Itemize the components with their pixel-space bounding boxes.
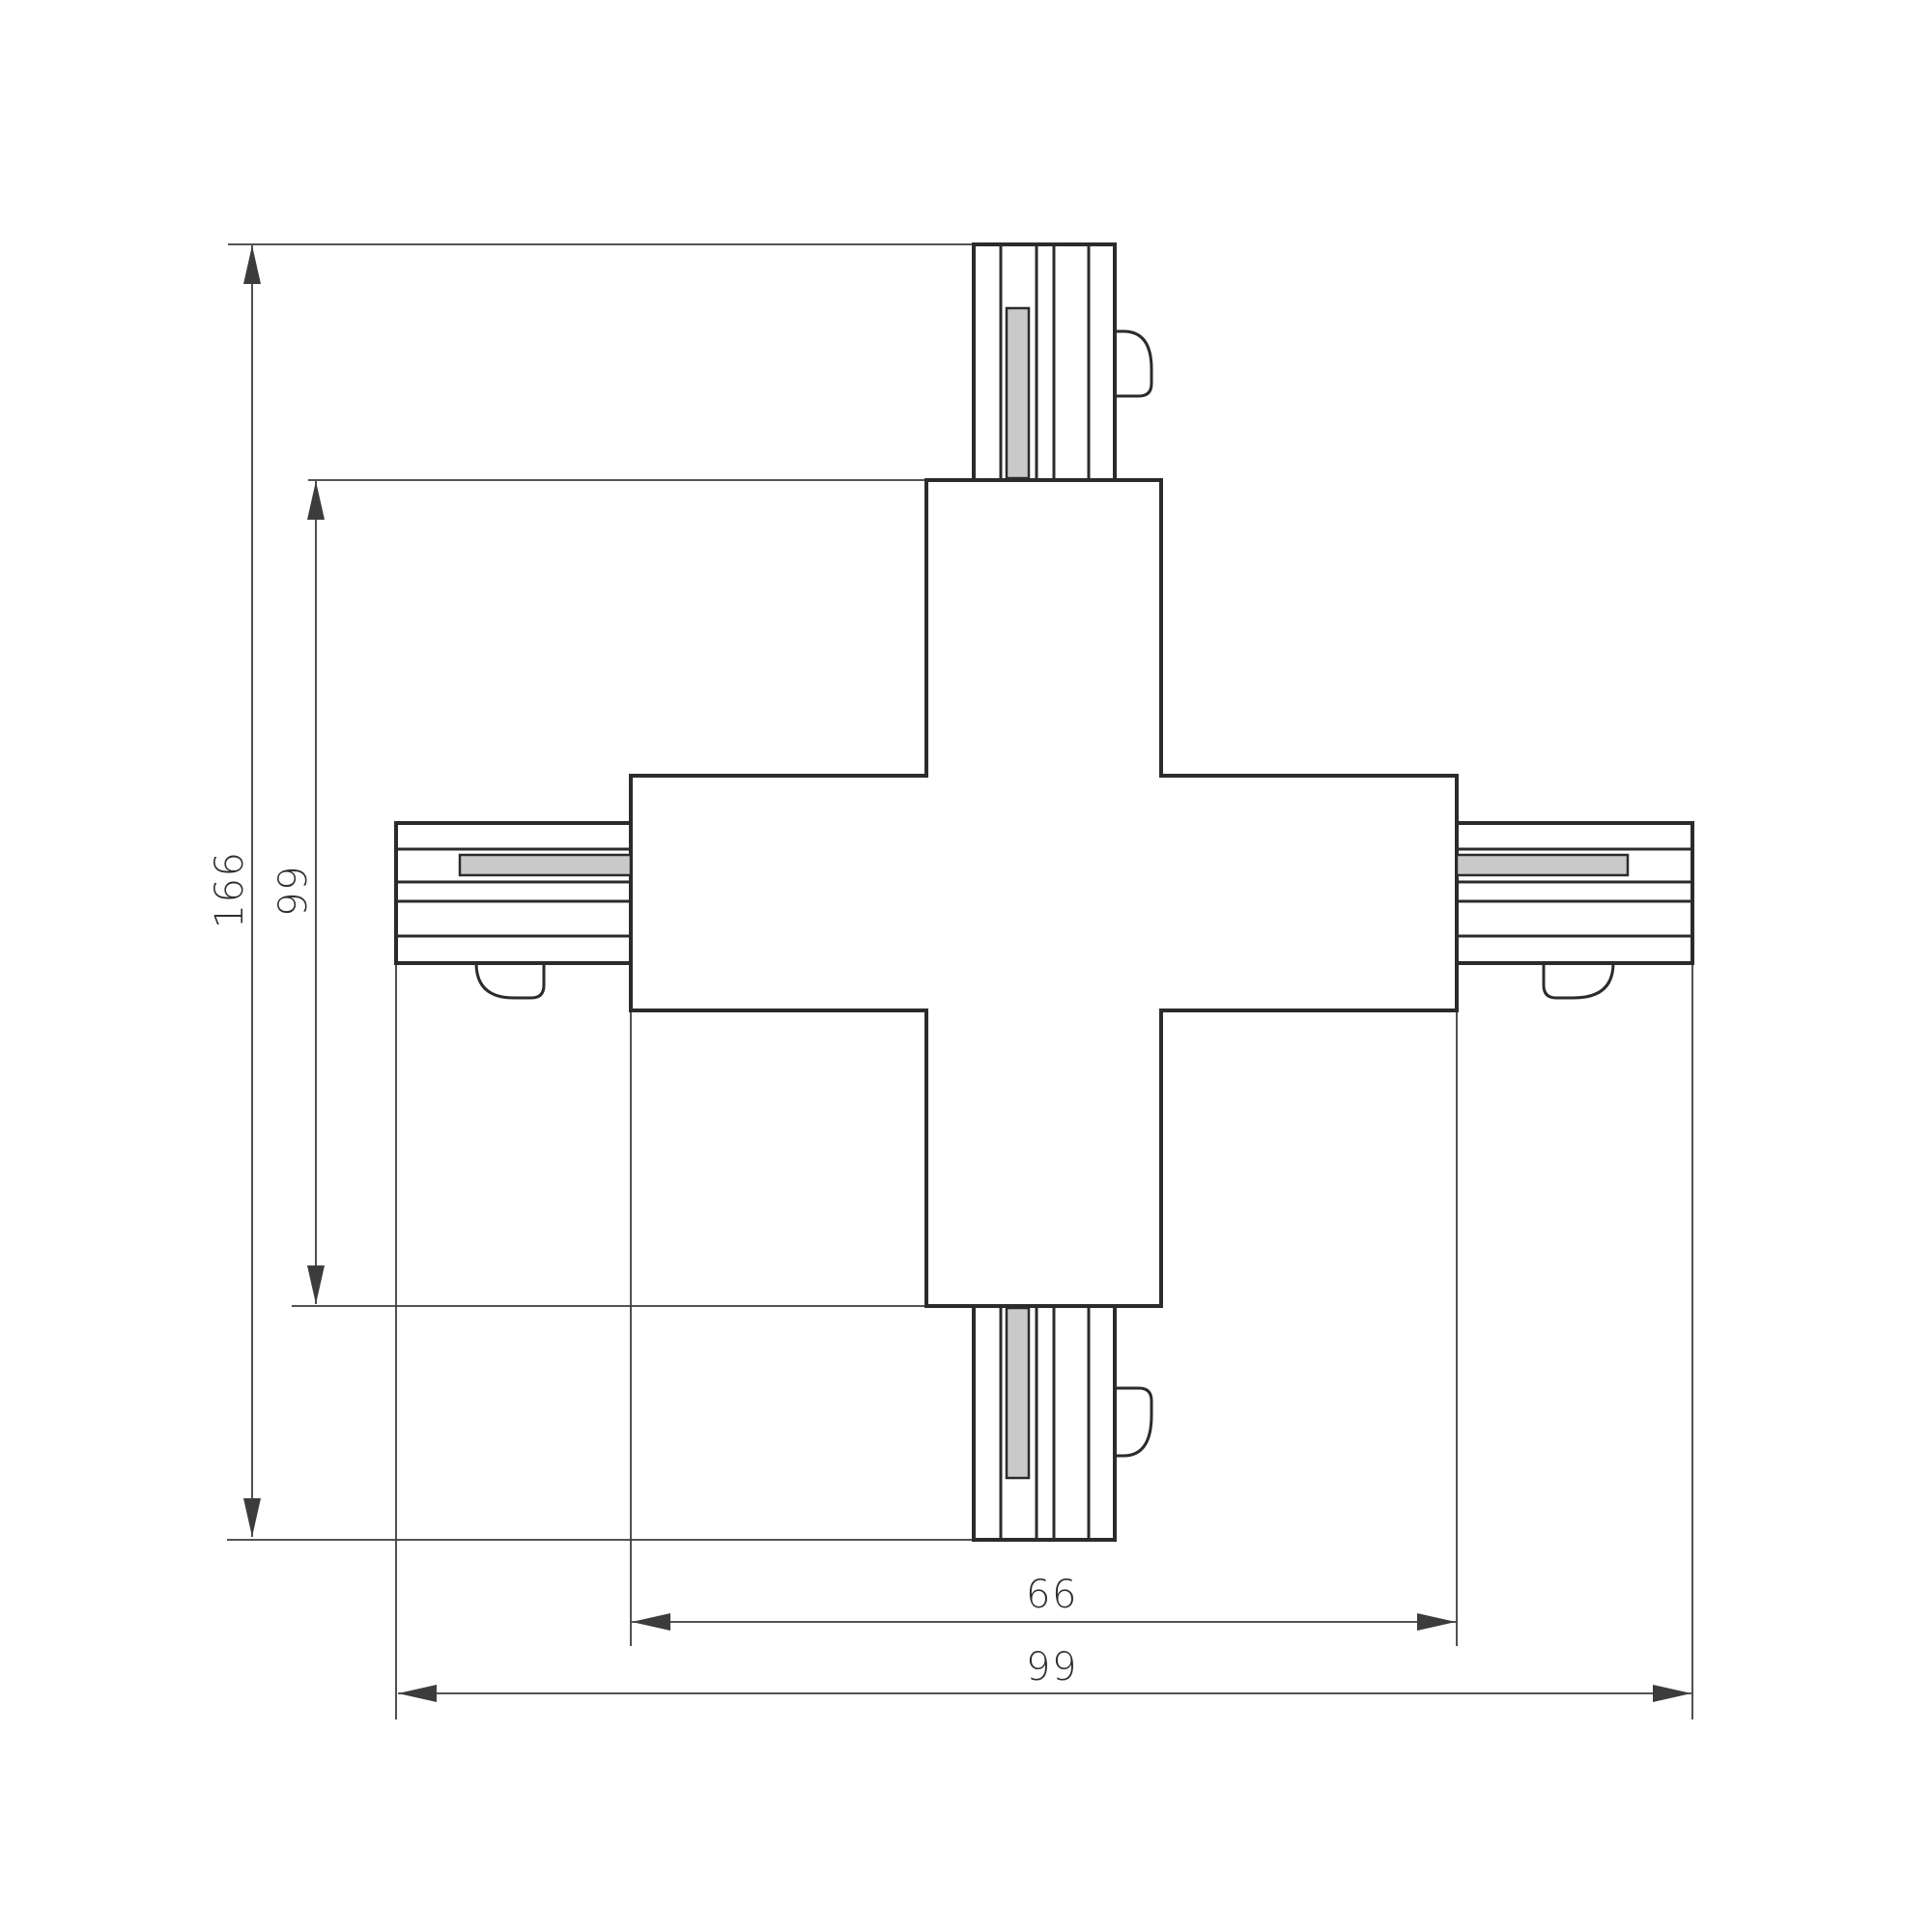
- arrowhead-right-icon: [1417, 1613, 1456, 1631]
- arrowhead-down-icon: [307, 1265, 325, 1304]
- contact-strip: [1007, 1308, 1029, 1478]
- connector-dimension-drawing: 166 99 66 99: [0, 0, 1932, 1932]
- connector-left: [396, 823, 631, 998]
- connector-body: [974, 1306, 1115, 1540]
- arrowhead-up-icon: [243, 245, 261, 284]
- connector-body: [974, 244, 1115, 480]
- contact-strip: [460, 855, 631, 875]
- dimension-label-body-width: 66: [1026, 1573, 1078, 1617]
- dimension-body-width: 66: [632, 1573, 1456, 1631]
- contact-strip: [1457, 855, 1628, 875]
- arrowhead-left-icon: [398, 1685, 437, 1702]
- arrowhead-right-icon: [1653, 1685, 1691, 1702]
- dimension-body-height: 99: [271, 481, 325, 1304]
- latch-right-connector: [1544, 963, 1613, 998]
- dimension-label-outer-height: 166: [208, 851, 252, 929]
- drawing-canvas: 166 99 66 99: [0, 0, 1932, 1932]
- contact-strip: [1007, 308, 1029, 478]
- arrowhead-down-icon: [243, 1498, 261, 1537]
- dimension-label-body-height: 99: [271, 865, 316, 917]
- latch-top-connector: [1115, 331, 1151, 396]
- connector-body: [396, 823, 631, 963]
- arrowhead-up-icon: [307, 481, 325, 520]
- arrowhead-left-icon: [632, 1613, 670, 1631]
- dimension-outer-width: 99: [398, 1645, 1691, 1702]
- dimension-label-outer-width: 99: [1026, 1645, 1078, 1690]
- connector-top: [974, 244, 1151, 480]
- latch-left-connector: [476, 963, 544, 998]
- connector-right: [1457, 823, 1692, 998]
- connector-bottom: [974, 1306, 1151, 1540]
- dimension-outer-height: 166: [208, 245, 261, 1537]
- connector-body: [1457, 823, 1692, 963]
- cross-body: [631, 480, 1457, 1306]
- latch-bottom-connector: [1115, 1388, 1151, 1456]
